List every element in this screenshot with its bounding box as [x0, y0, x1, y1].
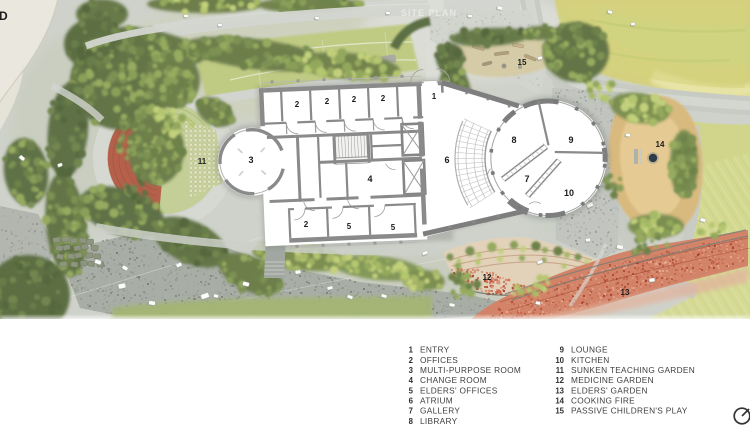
svg-text:12: 12 — [555, 376, 564, 385]
svg-text:9: 9 — [568, 135, 573, 145]
svg-text:2: 2 — [304, 220, 309, 229]
svg-text:5: 5 — [391, 223, 396, 232]
svg-text:1: 1 — [432, 92, 437, 101]
svg-text:14: 14 — [555, 396, 564, 405]
svg-text:SITE PLAN: SITE PLAN — [401, 8, 457, 18]
svg-text:5: 5 — [409, 386, 414, 395]
svg-text:CHANGE ROOM: CHANGE ROOM — [420, 375, 487, 385]
svg-text:7: 7 — [524, 174, 529, 184]
svg-text:6: 6 — [409, 396, 414, 405]
svg-text:4: 4 — [409, 376, 414, 385]
svg-text:3: 3 — [248, 155, 253, 165]
svg-text:9: 9 — [560, 346, 565, 355]
svg-text:5: 5 — [347, 222, 352, 231]
svg-text:ATRIUM: ATRIUM — [420, 395, 453, 405]
svg-text:1: 1 — [409, 346, 414, 355]
svg-text:11: 11 — [198, 157, 207, 166]
svg-text:12: 12 — [483, 273, 492, 282]
svg-text:8: 8 — [511, 135, 516, 145]
svg-text:10: 10 — [564, 188, 574, 198]
svg-text:6: 6 — [444, 155, 449, 165]
svg-text:13: 13 — [621, 288, 630, 297]
svg-text:D: D — [0, 9, 8, 23]
svg-text:3: 3 — [409, 366, 414, 375]
svg-text:15: 15 — [518, 58, 527, 67]
svg-text:2: 2 — [409, 356, 414, 365]
svg-text:2: 2 — [325, 97, 330, 106]
svg-text:ENTRY: ENTRY — [420, 345, 450, 355]
svg-text:ELDERS' OFFICES: ELDERS' OFFICES — [420, 385, 498, 395]
svg-text:MEDICINE GARDEN: MEDICINE GARDEN — [571, 375, 654, 385]
svg-text:OFFICES: OFFICES — [420, 355, 458, 365]
svg-text:ELDERS' GARDEN: ELDERS' GARDEN — [571, 385, 648, 395]
svg-text:MULTI-PURPOSE ROOM: MULTI-PURPOSE ROOM — [420, 365, 521, 375]
svg-text:11: 11 — [556, 366, 565, 375]
svg-text:KITCHEN: KITCHEN — [571, 355, 610, 365]
svg-text:COOKING FIRE: COOKING FIRE — [571, 395, 635, 405]
svg-text:14: 14 — [656, 140, 665, 149]
svg-text:LOUNGE: LOUNGE — [571, 345, 608, 355]
svg-text:LIBRARY: LIBRARY — [420, 416, 458, 426]
svg-text:PASSIVE CHILDREN'S PLAY: PASSIVE CHILDREN'S PLAY — [571, 406, 688, 416]
svg-text:GALLERY: GALLERY — [420, 406, 460, 416]
svg-text:SUNKEN TEACHING GARDEN: SUNKEN TEACHING GARDEN — [571, 365, 695, 375]
svg-text:7: 7 — [409, 407, 413, 416]
svg-text:13: 13 — [555, 386, 564, 395]
svg-text:10: 10 — [555, 356, 564, 365]
svg-text:2: 2 — [295, 100, 300, 109]
svg-text:8: 8 — [409, 417, 414, 426]
svg-text:2: 2 — [352, 95, 357, 104]
svg-text:15: 15 — [555, 407, 564, 416]
svg-text:2: 2 — [381, 94, 386, 103]
svg-text:4: 4 — [367, 174, 372, 184]
